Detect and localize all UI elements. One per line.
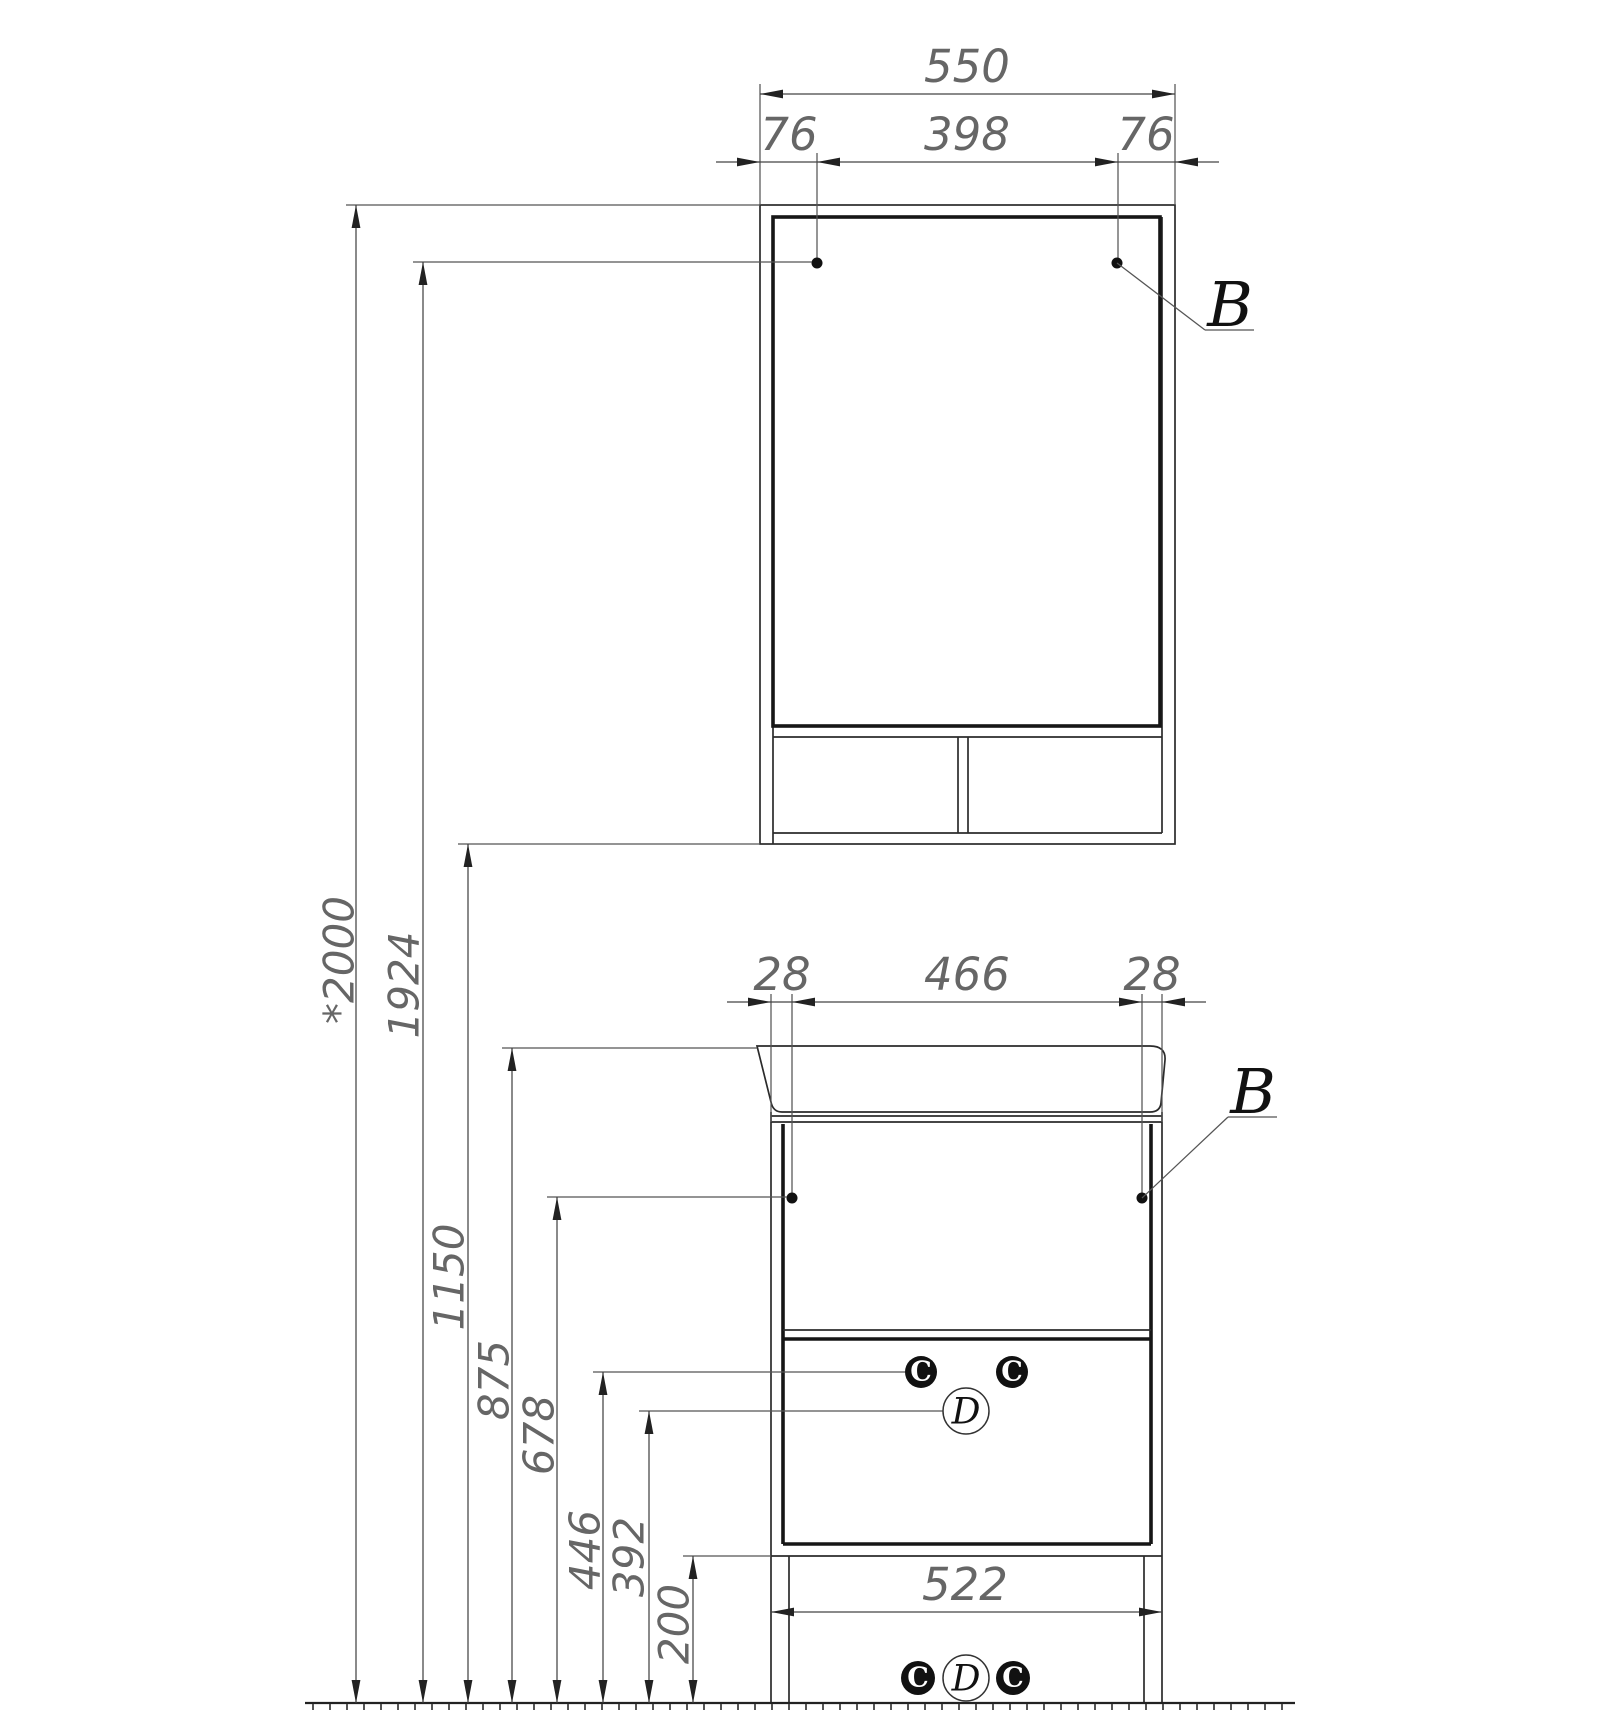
mirror-shelf bbox=[773, 737, 1162, 833]
dim-446-label: 446 bbox=[561, 1510, 610, 1590]
dim-466-label: 466 bbox=[924, 948, 1010, 1001]
fastener-callouts-bottom: C D C bbox=[901, 1655, 1030, 1701]
vanity-width-dimensions: 28 466 28 bbox=[727, 948, 1206, 1204]
washbasin bbox=[757, 1046, 1165, 1122]
dim-28-right-label: 28 bbox=[1123, 948, 1180, 1001]
callout-b-mirror: B bbox=[1206, 268, 1253, 341]
dim-76-left-label: 76 bbox=[760, 108, 817, 161]
dim-550-label: 550 bbox=[924, 40, 1010, 93]
dim-28-left-label: 28 bbox=[753, 948, 810, 1001]
dim-875-label: 875 bbox=[470, 1340, 519, 1420]
vanity-drawer-front bbox=[771, 1544, 1162, 1556]
floor-line bbox=[305, 1703, 1295, 1707]
furniture-dimension-drawing: 550 76 398 76 B 28 466 28 bbox=[0, 0, 1600, 1710]
dim-398-label: 398 bbox=[924, 108, 1010, 161]
dim-678-label: 678 bbox=[515, 1395, 564, 1475]
hinge-callout-mirror: B bbox=[1117, 263, 1254, 341]
callout-b-vanity: B bbox=[1229, 1055, 1276, 1128]
hinge-point-left bbox=[812, 258, 823, 269]
dim-392-label: 392 bbox=[605, 1517, 654, 1597]
washbasin-outline bbox=[757, 1046, 1165, 1112]
fastener-callouts-middle: C C D bbox=[905, 1356, 1028, 1434]
dim-76-right-label: 76 bbox=[1117, 108, 1174, 161]
fastener-c-label: C bbox=[910, 1357, 932, 1388]
height-dimensions: *2000 1924 1150 875 678 446 392 200 bbox=[315, 205, 944, 1703]
hinge-point-vanity-left bbox=[787, 1193, 798, 1204]
dim-1924-label: 1924 bbox=[380, 932, 429, 1039]
mirror-width-dimensions: 550 76 398 76 bbox=[716, 40, 1219, 269]
dim-2000-label: *2000 bbox=[315, 896, 364, 1024]
fastener-c-label: C bbox=[1001, 1357, 1023, 1388]
dim-1150-label: 1150 bbox=[425, 1224, 474, 1331]
technical-drawing-page: 550 76 398 76 B 28 466 28 bbox=[0, 0, 1600, 1710]
dim-522-label: 522 bbox=[922, 1558, 1008, 1611]
bottom-width-dimension: 522 bbox=[771, 1558, 1162, 1612]
fastener-d-label: D bbox=[951, 1659, 981, 1700]
fastener-c-label: C bbox=[1002, 1663, 1024, 1694]
fastener-c-label: C bbox=[907, 1663, 929, 1694]
mirror-cabinet bbox=[760, 205, 1175, 844]
mirror-door bbox=[773, 217, 1160, 726]
dim-200-label: 200 bbox=[650, 1584, 699, 1664]
fastener-d-label: D bbox=[951, 1392, 981, 1433]
vanity-door-front bbox=[783, 1124, 1151, 1544]
